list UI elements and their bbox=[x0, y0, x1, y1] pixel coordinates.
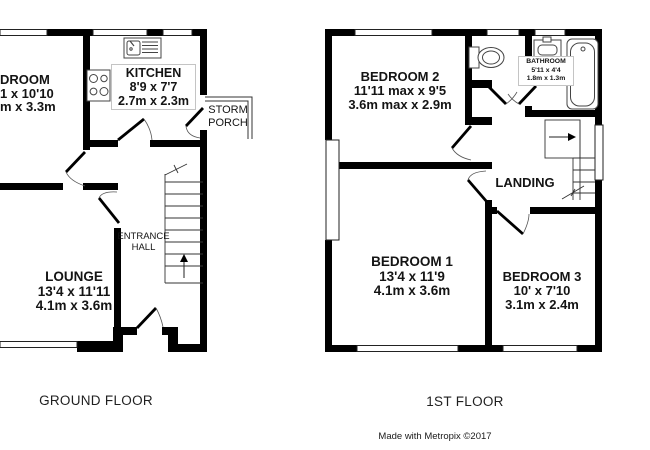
room-dims-ft: 1 x 10'10 bbox=[0, 87, 56, 101]
stairs-right-arrow-icon bbox=[549, 133, 576, 141]
room-dims-ft: 8'9 x 7'7 bbox=[114, 80, 193, 94]
room-dims-ft: 10' x 7'10 bbox=[482, 284, 602, 298]
toilet-icon bbox=[469, 47, 504, 68]
room-dims-m: 2.7m x 2.3m bbox=[114, 94, 193, 108]
room-dims-m: 4.1m x 3.6m bbox=[342, 284, 482, 299]
room-name: DROOM bbox=[0, 73, 56, 87]
room-name: BEDROOM 1 bbox=[342, 255, 482, 270]
landing-label: LANDING bbox=[494, 175, 556, 190]
room-name: LOUNGE bbox=[4, 270, 144, 285]
room-name: LANDING bbox=[494, 175, 556, 190]
room-dims-m: 3.6m max x 2.9m bbox=[330, 98, 470, 112]
room-name: BATHROOM bbox=[521, 58, 571, 67]
kitchen-label: KITCHEN 8'9 x 7'7 2.7m x 2.3m bbox=[111, 64, 196, 110]
floorplan-canvas: DROOM 1 x 10'10 m x 3.3m KITCHEN 8'9 x 7… bbox=[0, 0, 650, 450]
room-dims-ft: 13'4 x 11'11 bbox=[4, 285, 144, 300]
bedroom1-label: BEDROOM 1 13'4 x 11'9 4.1m x 3.6m bbox=[342, 255, 482, 299]
room-name: KITCHEN bbox=[114, 66, 193, 80]
clipped-room-label: DROOM 1 x 10'10 m x 3.3m bbox=[0, 73, 56, 114]
label-line: PORCH bbox=[204, 117, 252, 130]
bathroom-label: BATHROOM 5'11 x 4'4 1.8m x 1.3m bbox=[518, 56, 574, 86]
bedroom2-label: BEDROOM 2 11'11 max x 9'5 3.6m max x 2.9… bbox=[330, 70, 470, 112]
metropix-credit: Made with Metropix ©2017 bbox=[335, 431, 535, 442]
kitchen-sink-icon bbox=[124, 38, 161, 58]
room-name: BEDROOM 2 bbox=[330, 70, 470, 84]
first-floor-title: 1ST FLOOR bbox=[395, 394, 535, 409]
room-dims-ft: 11'11 max x 9'5 bbox=[330, 84, 470, 98]
room-dims-m: 1.8m x 1.3m bbox=[521, 75, 571, 84]
bedroom3-label: BEDROOM 3 10' x 7'10 3.1m x 2.4m bbox=[482, 270, 602, 312]
ground-floor-title: GROUND FLOOR bbox=[26, 393, 166, 408]
room-dims-m: 4.1m x 3.6m bbox=[4, 299, 144, 314]
room-dims-m: 3.1m x 2.4m bbox=[482, 298, 602, 312]
basin-icon bbox=[534, 37, 561, 57]
entrance-hall-label: ENTRANCE HALL bbox=[113, 231, 174, 253]
label-line: HALL bbox=[113, 242, 174, 253]
storm-porch-label: STORM PORCH bbox=[204, 104, 252, 129]
label-line: ENTRANCE bbox=[113, 231, 174, 242]
label-line: STORM bbox=[204, 104, 252, 117]
room-name: BEDROOM 3 bbox=[482, 270, 602, 284]
lounge-label: LOUNGE 13'4 x 11'11 4.1m x 3.6m bbox=[4, 270, 144, 314]
room-dims-ft: 5'11 x 4'4 bbox=[521, 67, 571, 76]
hob-icon bbox=[87, 70, 110, 101]
room-dims-ft: 13'4 x 11'9 bbox=[342, 270, 482, 285]
room-dims-m: m x 3.3m bbox=[0, 100, 56, 114]
